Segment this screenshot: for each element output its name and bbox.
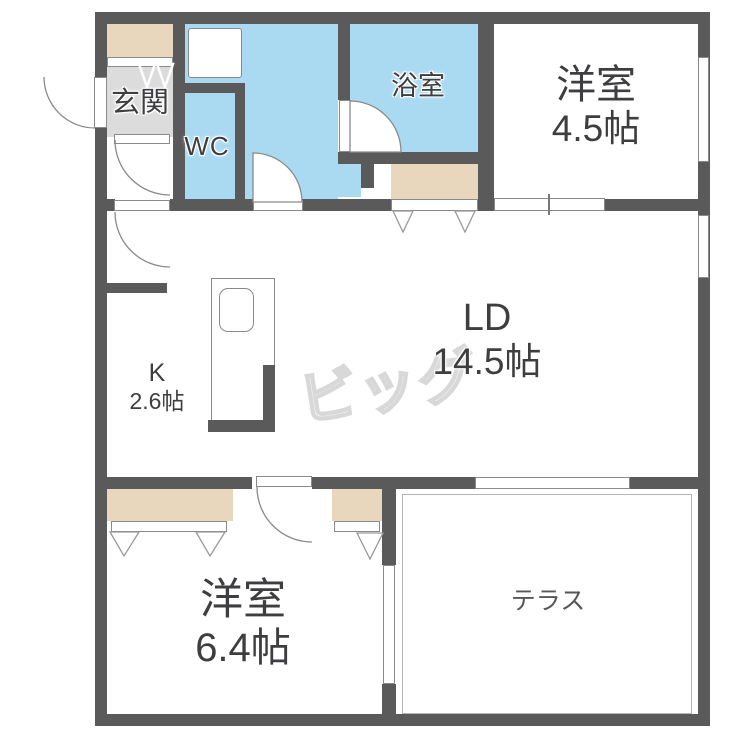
living-size: 14.5帖 <box>387 341 587 384</box>
bedroom2-label: 洋室 6.4帖 <box>143 576 343 671</box>
genkan-label: 玄関 <box>90 87 190 120</box>
bedroom2-name: 洋室 <box>143 576 343 625</box>
floorplan: 玄関 WC 浴室 洋室 4.5帖 LD 14.5帖 K 2.6帖 洋室 6.4帖… <box>0 0 750 750</box>
living-label: LD 14.5帖 <box>387 297 587 383</box>
wc-label: WC <box>160 132 254 162</box>
genkan-step-mark <box>139 64 173 87</box>
bedroom1-label: 洋室 4.5帖 <box>496 62 696 151</box>
hall-door-arc <box>115 212 170 267</box>
living-name: LD <box>387 297 587 341</box>
bedroom2-size: 6.4帖 <box>143 625 343 671</box>
bathroom-label: 浴室 <box>368 71 468 102</box>
washroom-door-swing <box>253 153 302 202</box>
bedroom1-name: 洋室 <box>496 62 696 108</box>
terrace-label: テラス <box>448 587 648 616</box>
bedroom2-door-arc <box>257 487 312 542</box>
bedroom1-size: 4.5帖 <box>496 108 696 151</box>
kitchen-size: 2.6帖 <box>107 388 207 414</box>
entrance-door-arc <box>44 77 95 128</box>
bathroom-door-swing <box>350 101 401 152</box>
kitchen-label: K 2.6帖 <box>107 359 207 414</box>
kitchen-name: K <box>107 359 207 388</box>
